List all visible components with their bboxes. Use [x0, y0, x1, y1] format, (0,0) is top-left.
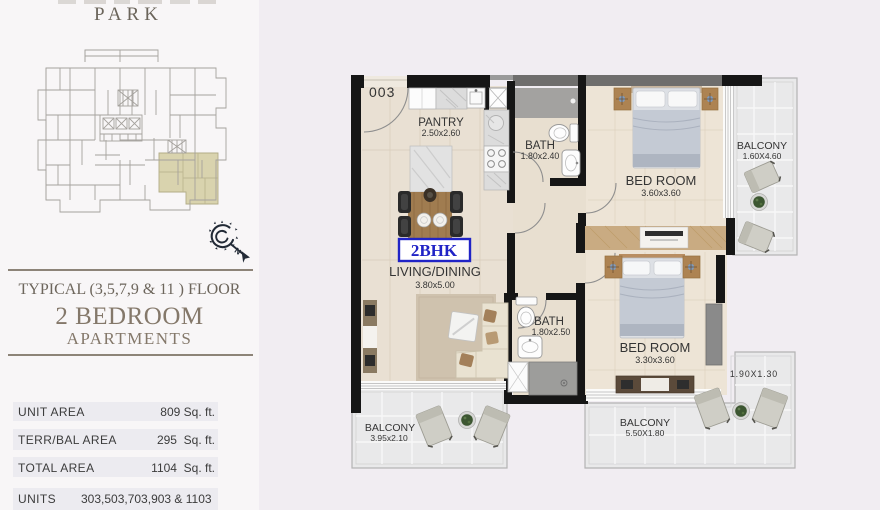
svg-text:1.60X4.60: 1.60X4.60	[743, 151, 782, 161]
svg-text:LIVING/DINING: LIVING/DINING	[389, 264, 481, 279]
svg-text:2.50x2.60: 2.50x2.60	[422, 128, 461, 138]
svg-text:1.80x2.50: 1.80x2.50	[532, 327, 571, 337]
svg-text:2BHK: 2BHK	[411, 241, 458, 260]
svg-text:3.60x3.60: 3.60x3.60	[641, 188, 681, 198]
svg-text:3.80x5.00: 3.80x5.00	[415, 280, 455, 290]
svg-text:3.30x3.60: 3.30x3.60	[635, 355, 675, 365]
svg-text:1.80x2.40: 1.80x2.40	[521, 151, 560, 161]
svg-text:BED ROOM: BED ROOM	[626, 173, 697, 188]
svg-text:1.90X1.30: 1.90X1.30	[730, 369, 778, 379]
svg-text:003: 003	[369, 84, 395, 100]
svg-text:5.50X1.80: 5.50X1.80	[626, 428, 665, 438]
svg-text:3.95x2.10: 3.95x2.10	[370, 433, 408, 443]
svg-text:BED ROOM: BED ROOM	[620, 340, 691, 355]
